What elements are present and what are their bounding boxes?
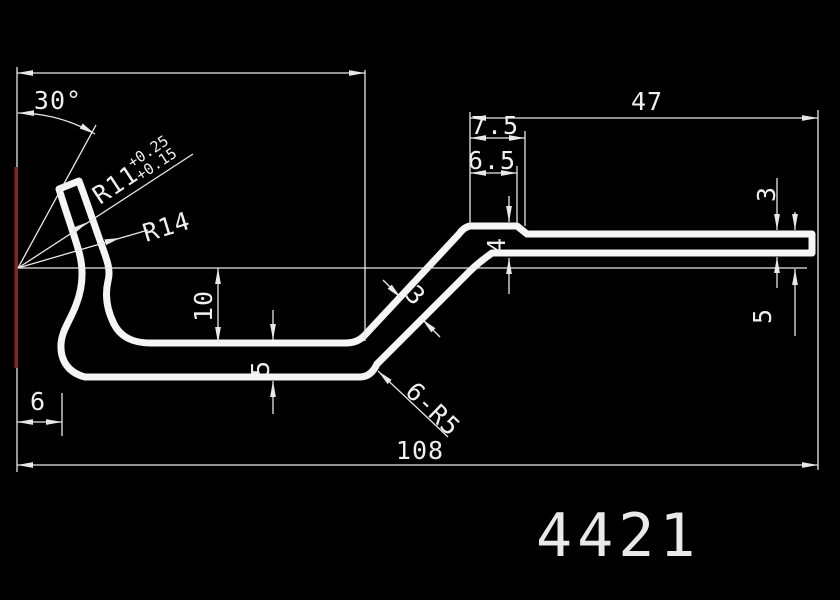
dim-label-channel-wall: 5 [246,360,275,376]
dim-label-hook-depth: 10 [189,290,218,322]
dim-label-overall-length: 108 [396,436,444,465]
dim-label-step-outer: 7.5 [471,111,519,140]
dim-label-tip-thickness: 3 [752,186,781,202]
part-number-text: 4421 [536,501,701,571]
dim-label-tip-height-group: 5 [748,308,777,324]
dim-label-hook-depth-group: 10 [189,290,218,322]
dim-label-right-flat: 47 [631,87,663,116]
cad-drawing-canvas: 30° R11 +0.25 +0.15 R14 10 5 6 108 47 7.… [0,0,840,600]
dim-label-mid-thickness-group: 4 [482,237,511,253]
dim-label-channel-wall-group: 5 [246,360,275,376]
dim-label-tip-height: 5 [748,308,777,324]
dim-label-angle: 30° [34,86,82,115]
dim-label-tip-thickness-group: 3 [752,186,781,202]
dim-label-mid-thickness: 4 [482,237,511,253]
dim-label-hook-offset: 6 [30,387,46,416]
dim-label-step-inner: 6.5 [468,146,516,175]
